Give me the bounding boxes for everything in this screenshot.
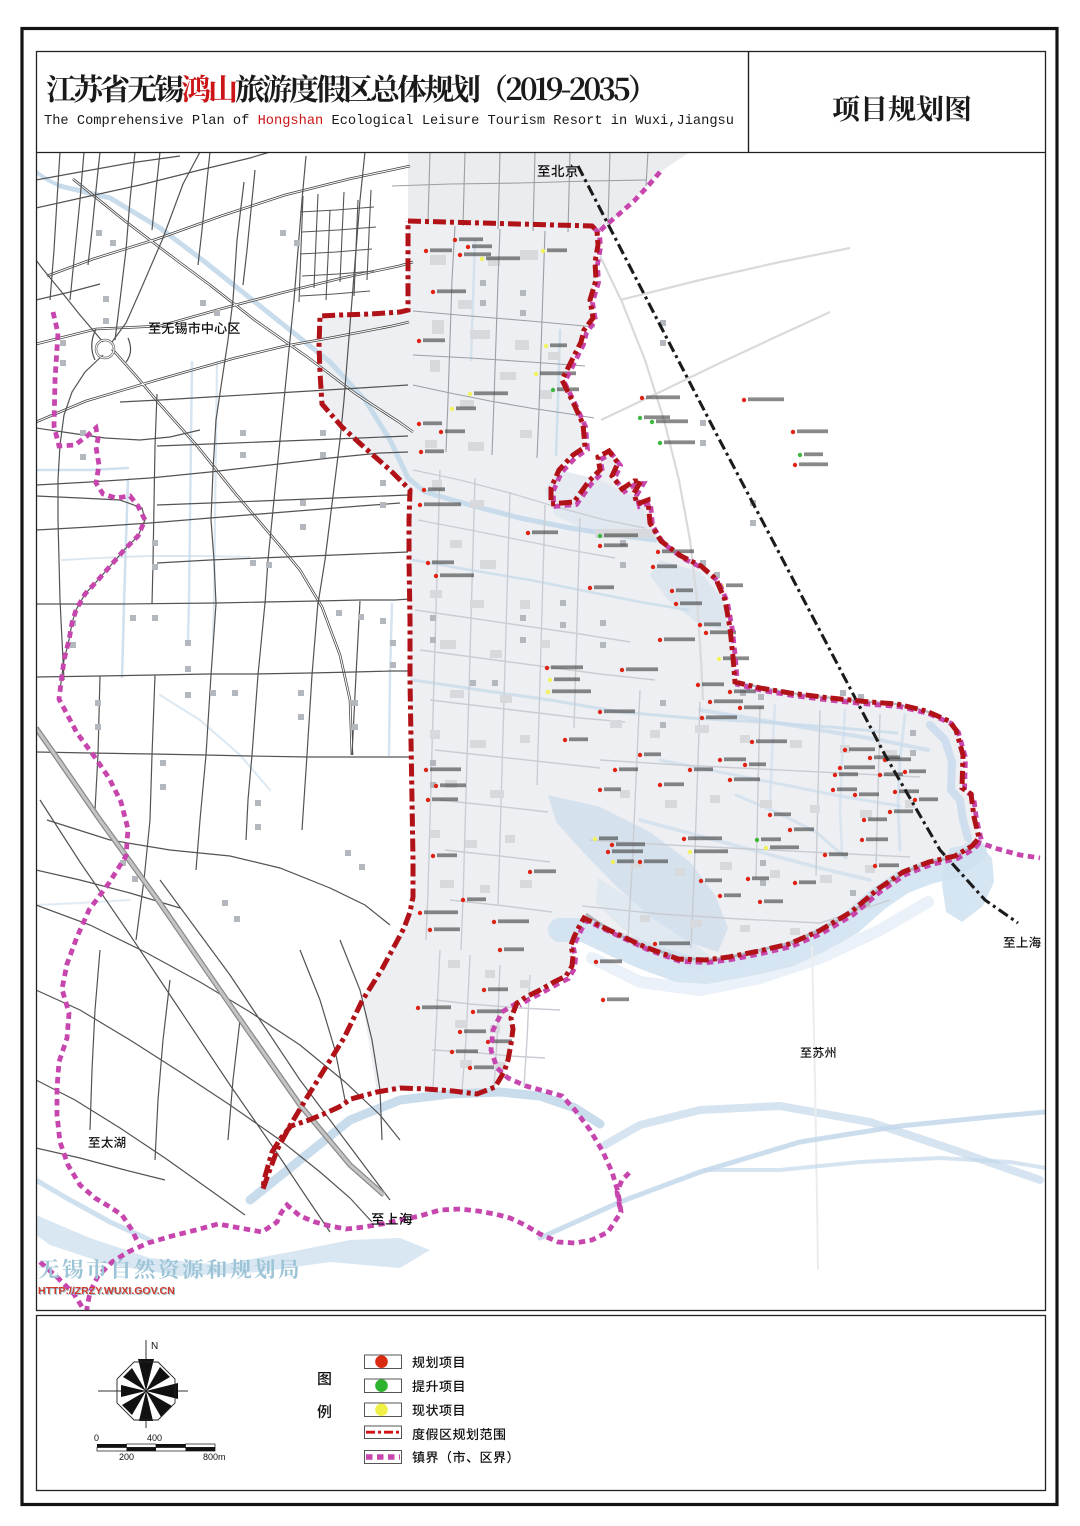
svg-text:The Comprehensive Plan of Hong: The Comprehensive Plan of Hongshan Ecolo… — [44, 114, 734, 129]
svg-text:800m: 800m — [203, 1452, 226, 1462]
svg-text:200: 200 — [119, 1452, 134, 1462]
svg-text:400: 400 — [147, 1433, 162, 1443]
svg-text:0: 0 — [94, 1433, 99, 1443]
svg-text:HTTP://ZRZY.WUXI.GOV.CN: HTTP://ZRZY.WUXI.GOV.CN — [38, 1285, 175, 1297]
svg-text:N: N — [151, 1341, 158, 1352]
